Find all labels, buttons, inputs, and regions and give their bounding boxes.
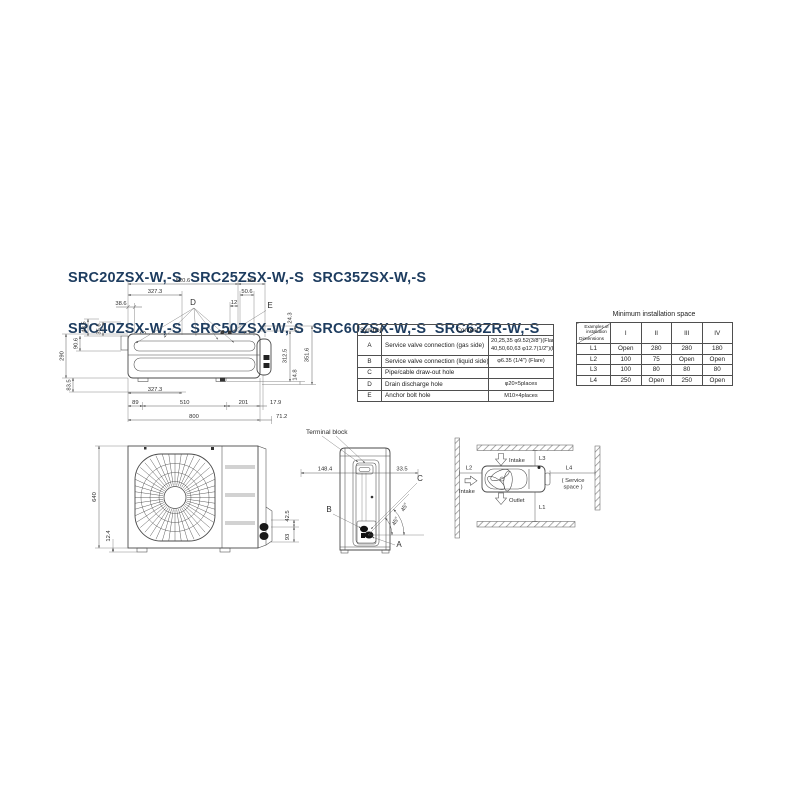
- callout-c-label: C: [417, 474, 423, 483]
- dim-35-6: 35.6: [97, 323, 103, 334]
- symbol-table: Symbol Content A Service valve connectio…: [357, 324, 554, 402]
- l2-ii: 75: [641, 354, 672, 365]
- installation-space-diagram: L2 Intake Intake L3 L4 ( Service space )…: [455, 436, 643, 554]
- symbol-table-header-content: Content: [382, 325, 554, 336]
- symbol-row-d: D Drain discharge hole φ20×5places: [358, 379, 554, 391]
- label-l4: L4: [566, 466, 573, 472]
- installation-table-corner: Examples of installation Dimensions: [577, 323, 611, 344]
- row-l4: L4 250 Open 250 Open: [577, 375, 733, 386]
- symbol-b-value: φ6.35 (1/4") (Flare): [489, 356, 554, 368]
- symbol-d: D: [358, 379, 382, 391]
- symbol-b: B: [358, 356, 382, 368]
- symbol-table-header-symbol: Symbol: [358, 325, 382, 336]
- dim-12-4: 12.4: [106, 530, 112, 542]
- l3-ii: 80: [641, 365, 672, 376]
- callout-d-label: D: [190, 298, 196, 307]
- dim-351-6: 351.6: [305, 348, 311, 363]
- intake-left-arrow-icon: [465, 476, 477, 485]
- dim-290: 290: [60, 351, 66, 361]
- l3-iv: 80: [702, 365, 733, 376]
- spec-sheet-page: SRC20ZSX-W,-S SRC25ZSX-W,-S SRC35ZSX-W,-…: [0, 0, 800, 800]
- symbol-a-desc: Service valve connection (gas side): [382, 336, 489, 356]
- label-outlet: Outlet: [509, 498, 525, 504]
- dim-14-8: 14.8: [293, 369, 299, 380]
- row-l1-label: L1: [577, 344, 611, 355]
- l4-i: 250: [611, 375, 642, 386]
- label-service-space-2: space ): [563, 485, 582, 491]
- intake-top-arrow-icon: [496, 454, 507, 466]
- space-diagram-labels: L2 Intake Intake L3 L4 ( Service space )…: [459, 456, 584, 511]
- row-l2: L2 100 75 Open Open: [577, 354, 733, 365]
- dim-42-5: 42.5: [285, 510, 291, 521]
- angle-45-inner: 45°: [391, 516, 400, 527]
- dim-38-6: 38.6: [115, 301, 126, 307]
- dim-24-3: 24.3: [288, 312, 294, 323]
- dim-312-5: 312.5: [283, 349, 289, 364]
- dim-33-5: 33.5: [396, 467, 407, 473]
- symbol-b-desc: Service valve connection (liquid side): [382, 356, 489, 368]
- dim-161: 161: [247, 278, 257, 284]
- symbol-row-b: B Service valve connection (liquid side)…: [358, 356, 554, 368]
- column-iii: III: [672, 323, 703, 344]
- wall-left: [455, 438, 460, 538]
- angle-45-outer: 45°: [400, 502, 409, 513]
- symbol-e-desc: Anchor bolt hole: [382, 390, 489, 402]
- symbol-a-value1: 20,25,35 φ9.52(3/8")(Flare): [491, 338, 551, 346]
- dim-148-4: 148.4: [318, 467, 333, 473]
- wall-right: [595, 446, 600, 510]
- dim-510: 510: [180, 400, 190, 406]
- row-l4-label: L4: [577, 375, 611, 386]
- fan-grille: [129, 452, 221, 544]
- dim-800: 800: [189, 414, 199, 420]
- side-view-dims: 148.4 33.5: [301, 467, 418, 522]
- dim-327-top: 327.3: [148, 289, 163, 295]
- pipe-angle-dims: 45° 45°: [368, 494, 424, 535]
- label-l2: L2: [466, 466, 472, 472]
- side-view-drawing: Terminal block 148.4: [298, 420, 456, 565]
- l3-i: 100: [611, 365, 642, 376]
- column-iv: IV: [702, 323, 733, 344]
- symbol-e: E: [358, 390, 382, 402]
- label-l1: L1: [539, 505, 545, 511]
- l2-iii: Open: [672, 354, 703, 365]
- wall-bottom: [477, 522, 575, 528]
- dim-520-6: 520.6: [176, 278, 191, 284]
- dim-640: 640: [92, 492, 98, 502]
- unit-top-view-small: [482, 466, 550, 492]
- callout-d-leaders: [136, 308, 234, 343]
- dim-93: 93: [285, 534, 291, 540]
- dim-90-6: 90.6: [74, 338, 80, 349]
- l1-i: Open: [611, 344, 642, 355]
- l2-i: 100: [611, 354, 642, 365]
- symbol-d-desc: Drain discharge hole: [382, 379, 489, 391]
- symbol-c: C: [358, 367, 382, 379]
- callout-a-label: A: [396, 540, 402, 549]
- symbol-a-value2: 40,50,60,63 φ12.7(1/2")(Flare): [491, 346, 551, 354]
- symbol-c-desc: Pipe/cable draw-out hole: [382, 367, 489, 379]
- symbol-e-value: M10×4places: [489, 390, 554, 402]
- symbol-row-a: A Service valve connection (gas side) 20…: [358, 336, 554, 356]
- label-intake-left: Intake: [459, 489, 475, 495]
- fan-hub: [164, 487, 186, 509]
- row-l3-label: L3: [577, 365, 611, 376]
- dim-12: 12: [231, 300, 237, 306]
- row-l3: L3 100 80 80 80: [577, 365, 733, 376]
- wall-top: [477, 445, 573, 451]
- l4-iii: 250: [672, 375, 703, 386]
- top-view-drawing: D E: [58, 274, 358, 434]
- front-view-drawing: 640 12.4 42.5 93: [85, 433, 307, 568]
- top-view-unit-body: [121, 331, 271, 382]
- symbol-row-e: E Anchor bolt hole M10×4places: [358, 390, 554, 402]
- corner-dimensions-label: Dimensions: [579, 337, 604, 342]
- dim-71-2: 71.2: [276, 414, 287, 420]
- l4-iv: Open: [702, 375, 733, 386]
- dim-43-5: 43.5: [82, 321, 88, 332]
- terminal-block-label: Terminal block: [306, 429, 348, 436]
- label-service-space-1: ( Service: [562, 478, 585, 484]
- callout-b-label: B: [326, 505, 331, 514]
- row-l2-label: L2: [577, 354, 611, 365]
- l1-ii: 280: [641, 344, 672, 355]
- callout-b-leader: [333, 514, 361, 528]
- dim-50-6: 50.6: [241, 289, 252, 295]
- installation-table-title: Minimum installation space: [576, 311, 732, 318]
- symbol-row-c: C Pipe/cable draw-out hole: [358, 367, 554, 379]
- column-i: I: [611, 323, 642, 344]
- dim-83-5: 83.5: [67, 379, 73, 390]
- column-ii: II: [641, 323, 672, 344]
- top-view-dim-labels: 520.6 161 327.3 50.6 12 38.6 43.5 35.6 9…: [60, 278, 311, 420]
- l2-iv: Open: [702, 354, 733, 365]
- callout-e-label: E: [267, 301, 272, 310]
- symbol-a: A: [358, 336, 382, 356]
- l3-iii: 80: [672, 365, 703, 376]
- dim-327-bottom: 327.3: [148, 387, 163, 393]
- label-intake-top: Intake: [509, 458, 525, 464]
- symbol-d-value: φ20×5places: [489, 379, 554, 391]
- dim-17-9: 17.9: [270, 400, 281, 406]
- fan-blades: [485, 467, 513, 492]
- outlet-arrow-icon: [496, 493, 507, 505]
- symbol-c-value: [489, 367, 554, 379]
- row-l1: L1 Open 280 280 180: [577, 344, 733, 355]
- label-l3: L3: [539, 456, 545, 462]
- corner-examples-label: Examples of installation: [583, 324, 610, 334]
- dim-89: 89: [132, 400, 138, 406]
- l1-iii: 280: [672, 344, 703, 355]
- side-view-unit-body: [340, 448, 390, 553]
- installation-table: Examples of installation Dimensions I II…: [576, 322, 733, 386]
- l1-iv: 180: [702, 344, 733, 355]
- dim-201: 201: [239, 400, 249, 406]
- l4-ii: Open: [641, 375, 672, 386]
